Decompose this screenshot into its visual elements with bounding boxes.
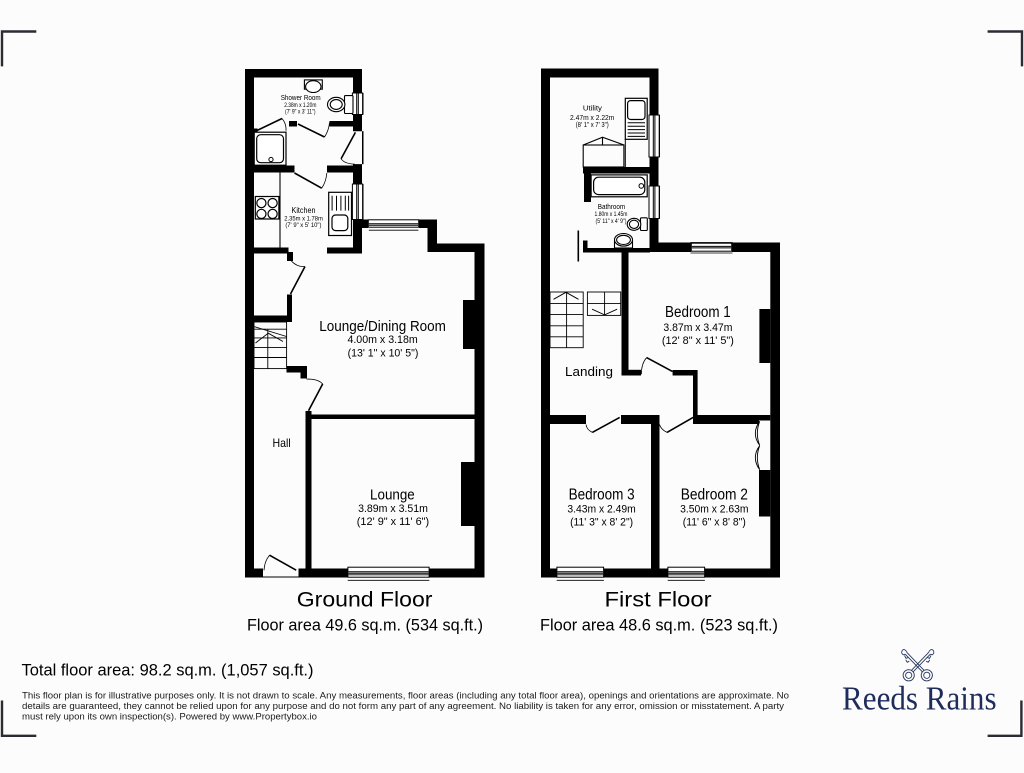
svg-text:Reeds Rains: Reeds Rains [842,681,997,718]
svg-text:Bedroom 3: Bedroom 3 [569,486,635,503]
svg-text:Bedroom 2: Bedroom 2 [681,486,748,503]
svg-text:(8' 1" x 7' 3"): (8' 1" x 7' 3") [576,122,609,129]
svg-text:Hall: Hall [273,436,291,450]
svg-text:details are guaranteed, they c: details are guaranteed, they cannot be r… [22,701,784,712]
svg-text:Bedroom 1: Bedroom 1 [665,304,731,321]
svg-text:This floor plan is for illustr: This floor plan is for illustrative purp… [22,691,789,702]
svg-text:Lounge/Dining Room: Lounge/Dining Room [319,319,446,335]
svg-text:(13' 1" x 10' 5"): (13' 1" x 10' 5") [348,347,419,359]
svg-text:Landing: Landing [565,365,613,379]
svg-text:(7' 9" x 5' 10"): (7' 9" x 5' 10") [285,222,321,229]
svg-text:must rely upon its own inspect: must rely upon its own inspection(s). Po… [22,712,317,723]
svg-text:3.43m x 2.49m: 3.43m x 2.49m [567,504,635,516]
svg-text:Shower Room: Shower Room [281,95,321,102]
svg-text:Bathroom: Bathroom [598,202,625,211]
svg-text:(12' 9" x 11' 6"): (12' 9" x 11' 6") [357,516,430,528]
svg-text:Total floor area: 98.2 sq.m. (: Total floor area: 98.2 sq.m. (1,057 sq.f… [22,662,314,680]
svg-text:2.47m x 2.22m: 2.47m x 2.22m [570,113,614,122]
svg-text:Ground Floor: Ground Floor [297,587,433,611]
svg-text:(7' 9" x 3' 11"): (7' 9" x 3' 11") [285,109,316,116]
svg-text:(11' 3" x 8' 2"): (11' 3" x 8' 2") [570,516,633,528]
svg-text:Floor area 48.6 sq.m. (523 sq.: Floor area 48.6 sq.m. (523 sq.ft.) [540,616,778,634]
svg-text:4.00m x 3.18m: 4.00m x 3.18m [347,334,417,346]
svg-text:1.80m x 1.45m: 1.80m x 1.45m [595,211,628,218]
svg-text:(5' 11" x 4' 9"): (5' 11" x 4' 9") [596,218,627,225]
svg-text:Lounge: Lounge [370,488,415,504]
svg-text:3.50m x 2.63m: 3.50m x 2.63m [680,504,748,516]
svg-text:3.89m x 3.51m: 3.89m x 3.51m [358,503,428,515]
svg-text:3.87m x 3.47m: 3.87m x 3.47m [663,322,732,334]
svg-text:(11' 6" x 8' 8"): (11' 6" x 8' 8") [683,516,746,528]
svg-text:Utility: Utility [583,103,602,112]
svg-text:(12' 8" x 11' 5"): (12' 8" x 11' 5") [662,335,734,347]
svg-text:First Floor: First Floor [605,587,712,611]
svg-text:Floor area 49.6 sq.m. (534 sq.: Floor area 49.6 sq.m. (534 sq.ft.) [247,616,483,634]
svg-text:Kitchen: Kitchen [292,206,316,215]
